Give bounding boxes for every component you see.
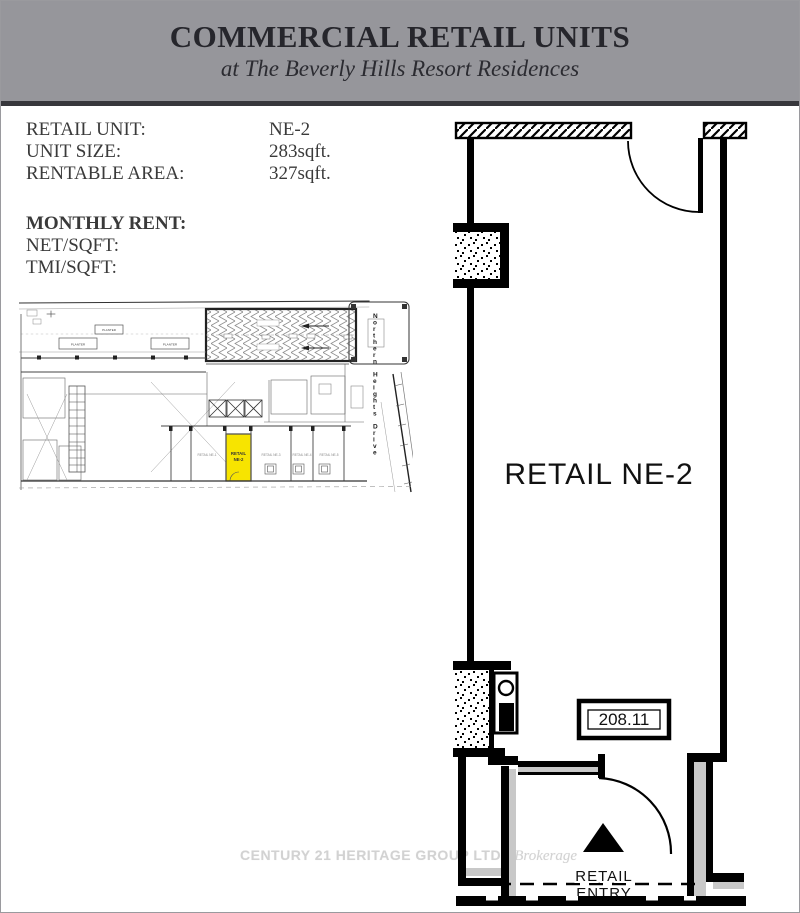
planter-label: PLANTER: [163, 343, 178, 347]
highlight-unit-label-1: RETAIL: [231, 451, 247, 456]
site-planters: PLANTER PLANTER PLANTER: [59, 325, 189, 349]
planter-label: PLANTER: [71, 343, 86, 347]
info-row-unit: RETAIL UNIT: NE-2: [26, 119, 426, 141]
site-fixtures: [265, 464, 330, 474]
header: COMMERCIAL RETAIL UNITS at The Beverly H…: [1, 1, 799, 101]
page-subtitle: at The Beverly Hills Resort Residences: [221, 56, 579, 82]
neighbor-unit-label: RETAIL NE-3: [262, 453, 281, 457]
room-label: RETAIL NE-2: [504, 458, 693, 491]
site-plan-drawing: Northern Heights Drive PLANTER PLANTER P…: [19, 294, 413, 496]
site-storage-cells: [69, 386, 85, 472]
highlight-unit-label-2: NE-2: [234, 457, 244, 462]
info-value: NE-2: [269, 119, 419, 141]
header-divider-bar: [1, 101, 799, 106]
site-colonnade: [19, 352, 206, 360]
info-label: TMI/SQFT:: [26, 257, 269, 279]
info-row-tmi: TMI/SQFT:: [26, 257, 426, 279]
door-fixture: [494, 673, 517, 733]
top-door-arc: [628, 138, 703, 213]
planter-label: PLANTER: [102, 328, 117, 332]
info-label: UNIT SIZE:: [26, 141, 269, 163]
storefront-glazing: [518, 754, 605, 778]
unit-number-plate: 208.11: [579, 701, 669, 738]
page-title: COMMERCIAL RETAIL UNITS: [170, 20, 631, 54]
site-retail-row: RETAIL NE-2 RETAIL NE-1 RETAIL NE-3 RETA…: [19, 426, 413, 488]
info-label: NET/SQFT:: [26, 235, 269, 257]
info-label: RETAIL UNIT:: [26, 119, 269, 141]
monthly-rent-heading: MONTHLY RENT:: [26, 213, 426, 235]
neighbor-unit-label: RETAIL NE-5: [320, 453, 339, 457]
entry-label-line1: RETAIL: [575, 868, 632, 885]
main-floor-plan: RETAIL NE-2 208.11: [441, 111, 800, 913]
info-label: RENTABLE AREA:: [26, 163, 269, 185]
flyer-page: COMMERCIAL RETAIL UNITS at The Beverly H…: [0, 0, 800, 913]
unit-number-label: 208.11: [599, 710, 650, 729]
west-wall: [467, 137, 474, 664]
info-row-rentable: RENTABLE AREA: 327sqft.: [26, 163, 426, 185]
east-wall: [687, 137, 727, 762]
site-loading-court: [349, 302, 409, 364]
info-row-net: NET/SQFT:: [26, 235, 426, 257]
site-highlight-unit: RETAIL NE-2: [226, 434, 251, 481]
entry-arrow-icon: [583, 823, 624, 852]
street-name-label: Northern Heights Drive: [373, 313, 378, 457]
site-elevators: [209, 400, 262, 417]
north-wall: [456, 123, 746, 138]
site-ramp: [206, 309, 356, 361]
neighbor-unit-label: RETAIL NE-1: [198, 453, 217, 457]
site-road-curve: [381, 372, 413, 492]
info-value: 327sqft.: [269, 163, 419, 185]
unit-info: RETAIL UNIT: NE-2 UNIT SIZE: 283sqft. RE…: [26, 119, 426, 279]
south-wall: [456, 896, 746, 906]
info-row-size: UNIT SIZE: 283sqft.: [26, 141, 426, 163]
info-value: 283sqft.: [269, 141, 419, 163]
neighbor-unit-label: RETAIL NE-4: [293, 453, 312, 457]
west-column: [453, 223, 509, 288]
